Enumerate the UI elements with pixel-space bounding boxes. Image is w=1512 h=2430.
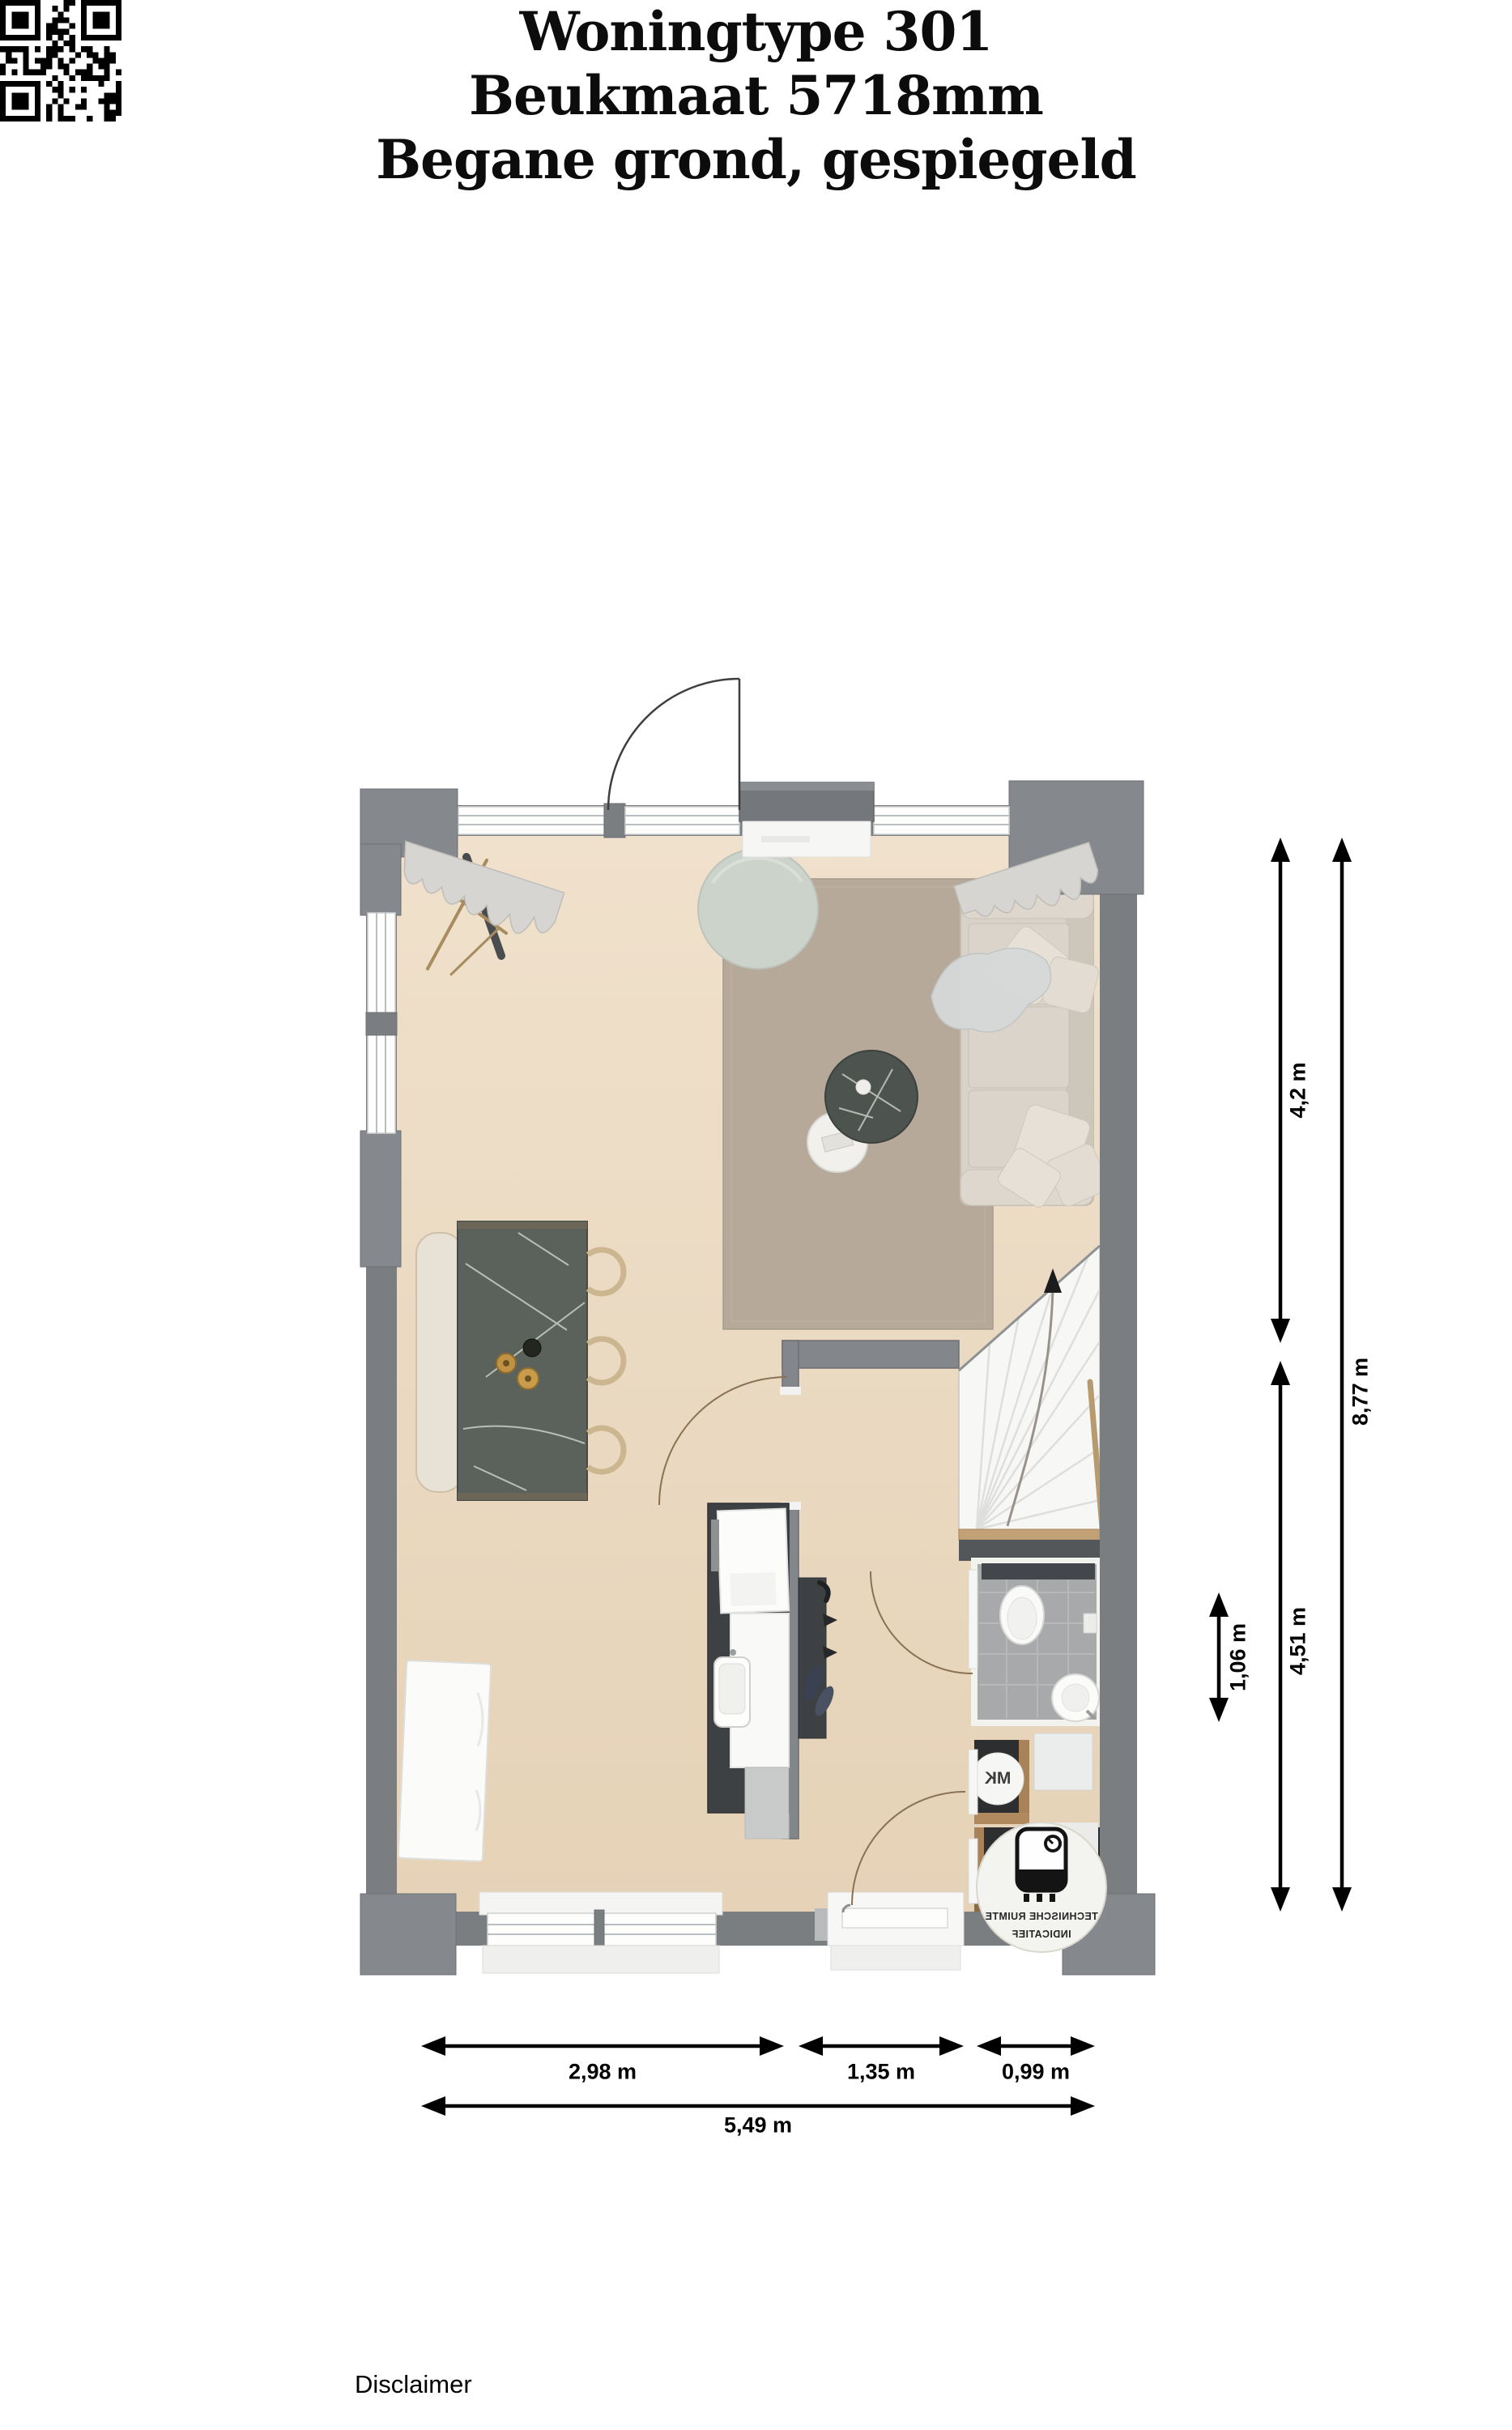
dim-label-2-98-m: 2,98 m: [569, 2060, 637, 2085]
floorplan-page: Woningtype 301 Beukmaat 5718mm Begane gr…: [0, 0, 1512, 2430]
qr-caption: Disclaimer: [355, 2370, 472, 2399]
dim-label-4-51-m: 4,51 m: [1286, 1607, 1311, 1675]
top-wall-windows: [458, 804, 1009, 838]
washing-machine: [398, 1660, 492, 1861]
floor-plan-drawing: [0, 0, 1512, 2430]
left-wall-window: [366, 913, 397, 1133]
water-heater-icon: [1017, 1829, 1066, 1902]
dim-label-1-35-m: 1,35 m: [847, 2060, 915, 2085]
meter-cupboard-label: MK: [985, 1769, 1012, 1788]
technical-room-door: [969, 1839, 977, 1904]
entry-door: [739, 782, 874, 857]
meter-cupboard-door: [969, 1750, 977, 1814]
qr-code: [0, 0, 121, 122]
coffee-table: [825, 1051, 918, 1143]
toilet-cistern: [982, 1563, 1095, 1579]
kitchen-counter: [708, 1503, 789, 1839]
dining-bench: [416, 1233, 463, 1492]
corner-block-bottom-left: [360, 1894, 456, 1975]
kitchen-island-table: [458, 1221, 587, 1500]
entry-door-swing: [608, 679, 739, 810]
toilet-roll-holder: [1084, 1614, 1097, 1633]
dim-label-1-06-m: 1,06 m: [1226, 1623, 1251, 1691]
bottom-wall-window: [479, 1892, 722, 1973]
technical-room-label-line2: INDICATIEF: [1012, 1929, 1071, 1940]
dim-label-8-77-m: 8,77 m: [1348, 1358, 1374, 1426]
technical-room-label-line1: TECHNISCHE RUIMTE: [985, 1911, 1097, 1922]
front-door: [815, 1892, 964, 1970]
dim-label-5-49-m: 5,49 m: [724, 2113, 792, 2138]
round-pouf: [698, 849, 818, 969]
dim-label-0-99-m: 0,99 m: [1002, 2060, 1070, 2085]
toilet-door: [969, 1570, 977, 1669]
dim-label-4-2-m: 4,2 m: [1286, 1062, 1311, 1118]
